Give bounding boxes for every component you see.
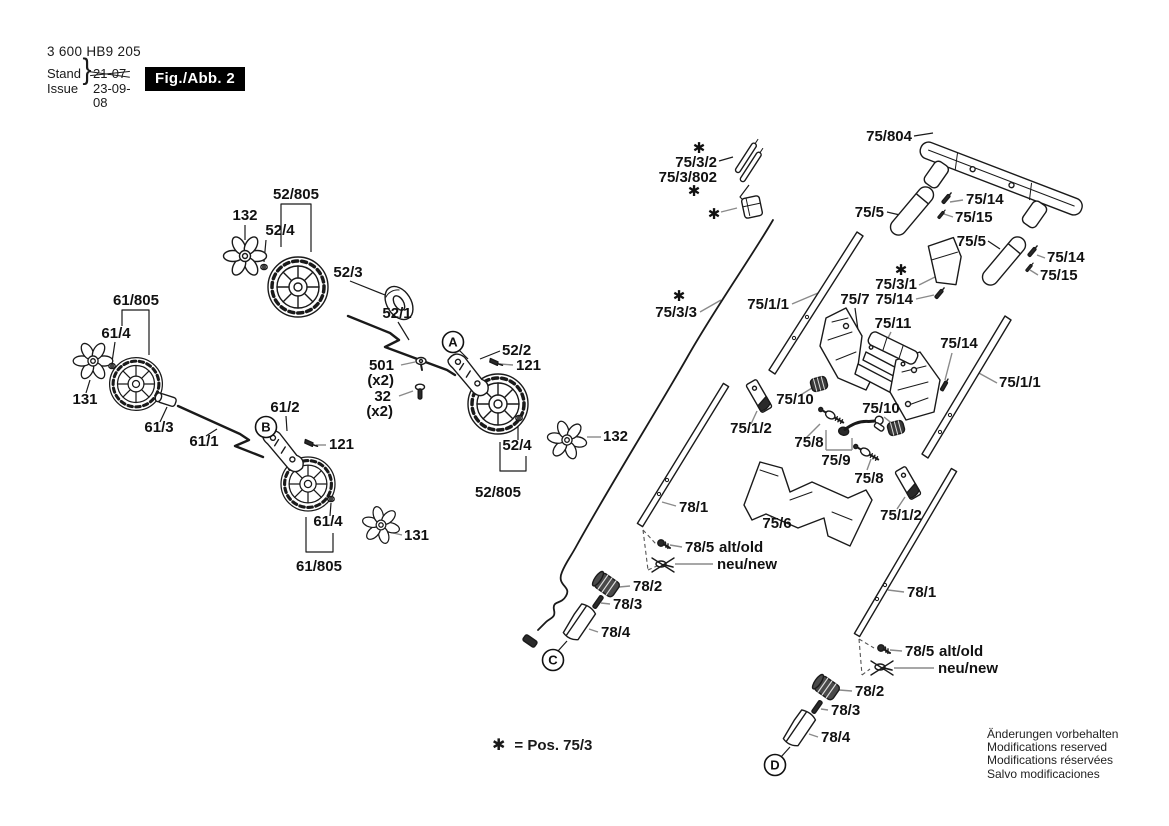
- part-label-132: 132: [232, 207, 257, 224]
- plate-75-1-2: [746, 379, 772, 413]
- pin-78-3: [592, 595, 603, 609]
- grip-75-5: [887, 184, 937, 239]
- part-label-121: 121: [516, 357, 541, 374]
- part-label-61-805: 61/805: [296, 558, 342, 575]
- hubcap-131-b: [358, 502, 404, 548]
- part-label--: ✱: [708, 206, 721, 223]
- part-label-78-4: 78/4: [601, 624, 631, 641]
- tube-78-1-b: [854, 469, 956, 637]
- view-marker-c: C: [543, 650, 564, 671]
- svg-text:B: B: [261, 420, 270, 435]
- pin-75-14-d: [940, 378, 949, 391]
- part-label-75-5: 75/5: [855, 204, 884, 221]
- part-label-75-5: 75/5: [957, 233, 986, 250]
- diagram-page: 52/80513252/452/352/152/2121501(x2)32(x2…: [0, 0, 1169, 826]
- screw-501: [416, 358, 426, 371]
- part-label-75-9: 75/9: [821, 452, 850, 469]
- cable-clamp: [741, 195, 763, 218]
- issue-date: 23-09-08: [93, 82, 141, 111]
- exploded-parts-diagram: 52/80513252/452/352/152/2121501(x2)32(x2…: [0, 0, 1169, 826]
- revision-dates: 21-07 23-09-08: [93, 67, 141, 111]
- svg-text:D: D: [770, 758, 779, 773]
- sleeve-78-4: [561, 602, 597, 643]
- sleeve-78-4-b: [781, 708, 817, 749]
- part-label-131: 131: [72, 391, 97, 408]
- part-label-132: 132: [603, 428, 628, 445]
- wheel-rear-61-805: [110, 358, 163, 411]
- asterisk-icon: ✱: [492, 737, 505, 754]
- part-label-75-10: 75/10: [776, 391, 814, 408]
- part-label--x2-: (x2): [366, 403, 393, 420]
- part-label-78-5: 78/5: [905, 643, 934, 660]
- part-label-75-14: 75/14: [940, 335, 978, 352]
- adjuster-75-8-b: [852, 442, 880, 462]
- spring-75-10: [810, 376, 829, 393]
- part-label-75-14: 75/14: [1047, 249, 1085, 266]
- screw-121-b: [304, 440, 318, 448]
- hubcap-132-b: [544, 417, 590, 463]
- screw-78-5-old-b: [877, 644, 891, 654]
- part-label-neu-new: neu/new: [938, 660, 998, 677]
- part-label-61-4: 61/4: [101, 325, 131, 342]
- disclaimer-line-es: Salvo modificaciones: [987, 768, 1118, 781]
- screw-78-5-old: [657, 539, 671, 549]
- part-label-75-10: 75/10: [862, 400, 900, 417]
- part-label-61-3: 61/3: [144, 419, 173, 436]
- screw-78-5-new-crossed: [652, 558, 674, 572]
- part-label-78-3: 78/3: [831, 702, 860, 719]
- part-label-78-5: 78/5: [685, 539, 714, 556]
- washer-52-4-b: [516, 415, 522, 420]
- part-label-neu-new: neu/new: [717, 556, 777, 573]
- switch-pins-75-3-2: [732, 138, 768, 183]
- part-label-61-1: 61/1: [189, 433, 218, 450]
- part-label-75-7: 75/7: [840, 291, 869, 308]
- part-label-75-11: 75/11: [875, 315, 912, 332]
- pin-75-14-b: [1028, 245, 1039, 257]
- part-label-61-4: 61/4: [313, 513, 343, 530]
- part-label-52-805: 52/805: [475, 484, 521, 501]
- part-label-75-804: 75/804: [866, 128, 913, 145]
- part-label-121: 121: [329, 436, 354, 453]
- part-label-75-8: 75/8: [854, 470, 883, 487]
- part-label-61-2: 61/2: [270, 399, 299, 416]
- hubcap-131: [73, 341, 113, 380]
- part-label-61-805: 61/805: [113, 292, 159, 309]
- svg-text:A: A: [448, 335, 458, 350]
- knob-78-2: [591, 570, 621, 598]
- part-label--: ✱: [688, 183, 701, 200]
- part-label-75-15: 75/15: [955, 209, 993, 226]
- part-label-52-3: 52/3: [333, 264, 362, 281]
- part-label-75-6: 75/6: [762, 515, 791, 532]
- plate-75-1-2-b: [895, 466, 921, 500]
- part-label-78-4: 78/4: [821, 729, 851, 746]
- wheel-front-52-805: [268, 257, 328, 317]
- old-date-struck: 21-07: [93, 67, 126, 82]
- part-label-alt-old: alt/old: [939, 643, 983, 660]
- view-marker-d: D: [765, 755, 786, 776]
- part-label-131: 131: [404, 527, 429, 544]
- part-label--x2-: (x2): [367, 372, 394, 389]
- part-label-75-15: 75/15: [1040, 267, 1078, 284]
- cable-end-plug: [522, 634, 537, 648]
- part-label-52-4: 52/4: [265, 222, 295, 239]
- part-label-78-2: 78/2: [855, 683, 884, 700]
- part-label-alt-old: alt/old: [719, 539, 763, 556]
- part-label-78-3: 78/3: [613, 596, 642, 613]
- footnote-text: = Pos. 75/3: [514, 737, 592, 754]
- pin-78-3-b: [811, 700, 822, 714]
- part-label-75-1-2: 75/1/2: [730, 420, 772, 437]
- part-label-52-4: 52/4: [502, 437, 532, 454]
- part-label--: ✱: [673, 288, 686, 305]
- part-label-52-805: 52/805: [273, 186, 319, 203]
- document-number: 3 600 HB9 205: [47, 44, 141, 59]
- screw-121: [489, 359, 503, 367]
- part-label-78-1: 78/1: [907, 584, 936, 601]
- washer-61-4: [109, 363, 115, 368]
- modifications-disclaimer: Änderungen vorbehalten Modifications res…: [987, 728, 1118, 781]
- hubcap-132: [224, 235, 267, 278]
- part-label-75-14: 75/14: [875, 291, 913, 308]
- view-marker-a: A: [443, 332, 464, 353]
- part-label-75-8: 75/8: [794, 434, 823, 451]
- pin-75-14-c: [935, 287, 946, 299]
- figure-badge: Fig./Abb. 2: [145, 67, 245, 91]
- svg-text:C: C: [548, 653, 558, 668]
- adjuster-75-8: [817, 405, 845, 425]
- title-block: 3 600 HB9 205 Stand Issue } 21-07 23-09-…: [47, 44, 141, 96]
- axle-52-1: [348, 316, 455, 375]
- screw-78-5-new-crossed-b: [871, 661, 893, 675]
- part-label-75-14: 75/14: [966, 191, 1004, 208]
- part-label-75-1-1: 75/1/1: [747, 296, 789, 313]
- knob-78-2-b: [811, 673, 841, 701]
- part-label-52-1: 52/1: [382, 305, 411, 322]
- view-marker-b: B: [256, 417, 277, 438]
- washer-61-4-b: [328, 496, 334, 501]
- disclaimer-line-fr: Modifications réservées: [987, 754, 1118, 767]
- washer-52-4: [261, 264, 267, 269]
- screw-32: [416, 384, 425, 399]
- bushing-61-3: [154, 392, 177, 407]
- part-label-75-3-3: 75/3/3: [655, 304, 697, 321]
- part-label-78-1: 78/1: [679, 499, 708, 516]
- asterisk-footnote: ✱= Pos. 75/3: [492, 735, 592, 755]
- part-label-78-2: 78/2: [633, 578, 662, 595]
- part-label-75-1-1: 75/1/1: [999, 374, 1041, 391]
- revision-block: Stand Issue } 21-07 23-09-08: [47, 67, 141, 96]
- part-label-75-1-2: 75/1/2: [880, 507, 922, 524]
- grip-75-5-b: [979, 234, 1029, 289]
- lower-bracket-75-6: [744, 462, 872, 546]
